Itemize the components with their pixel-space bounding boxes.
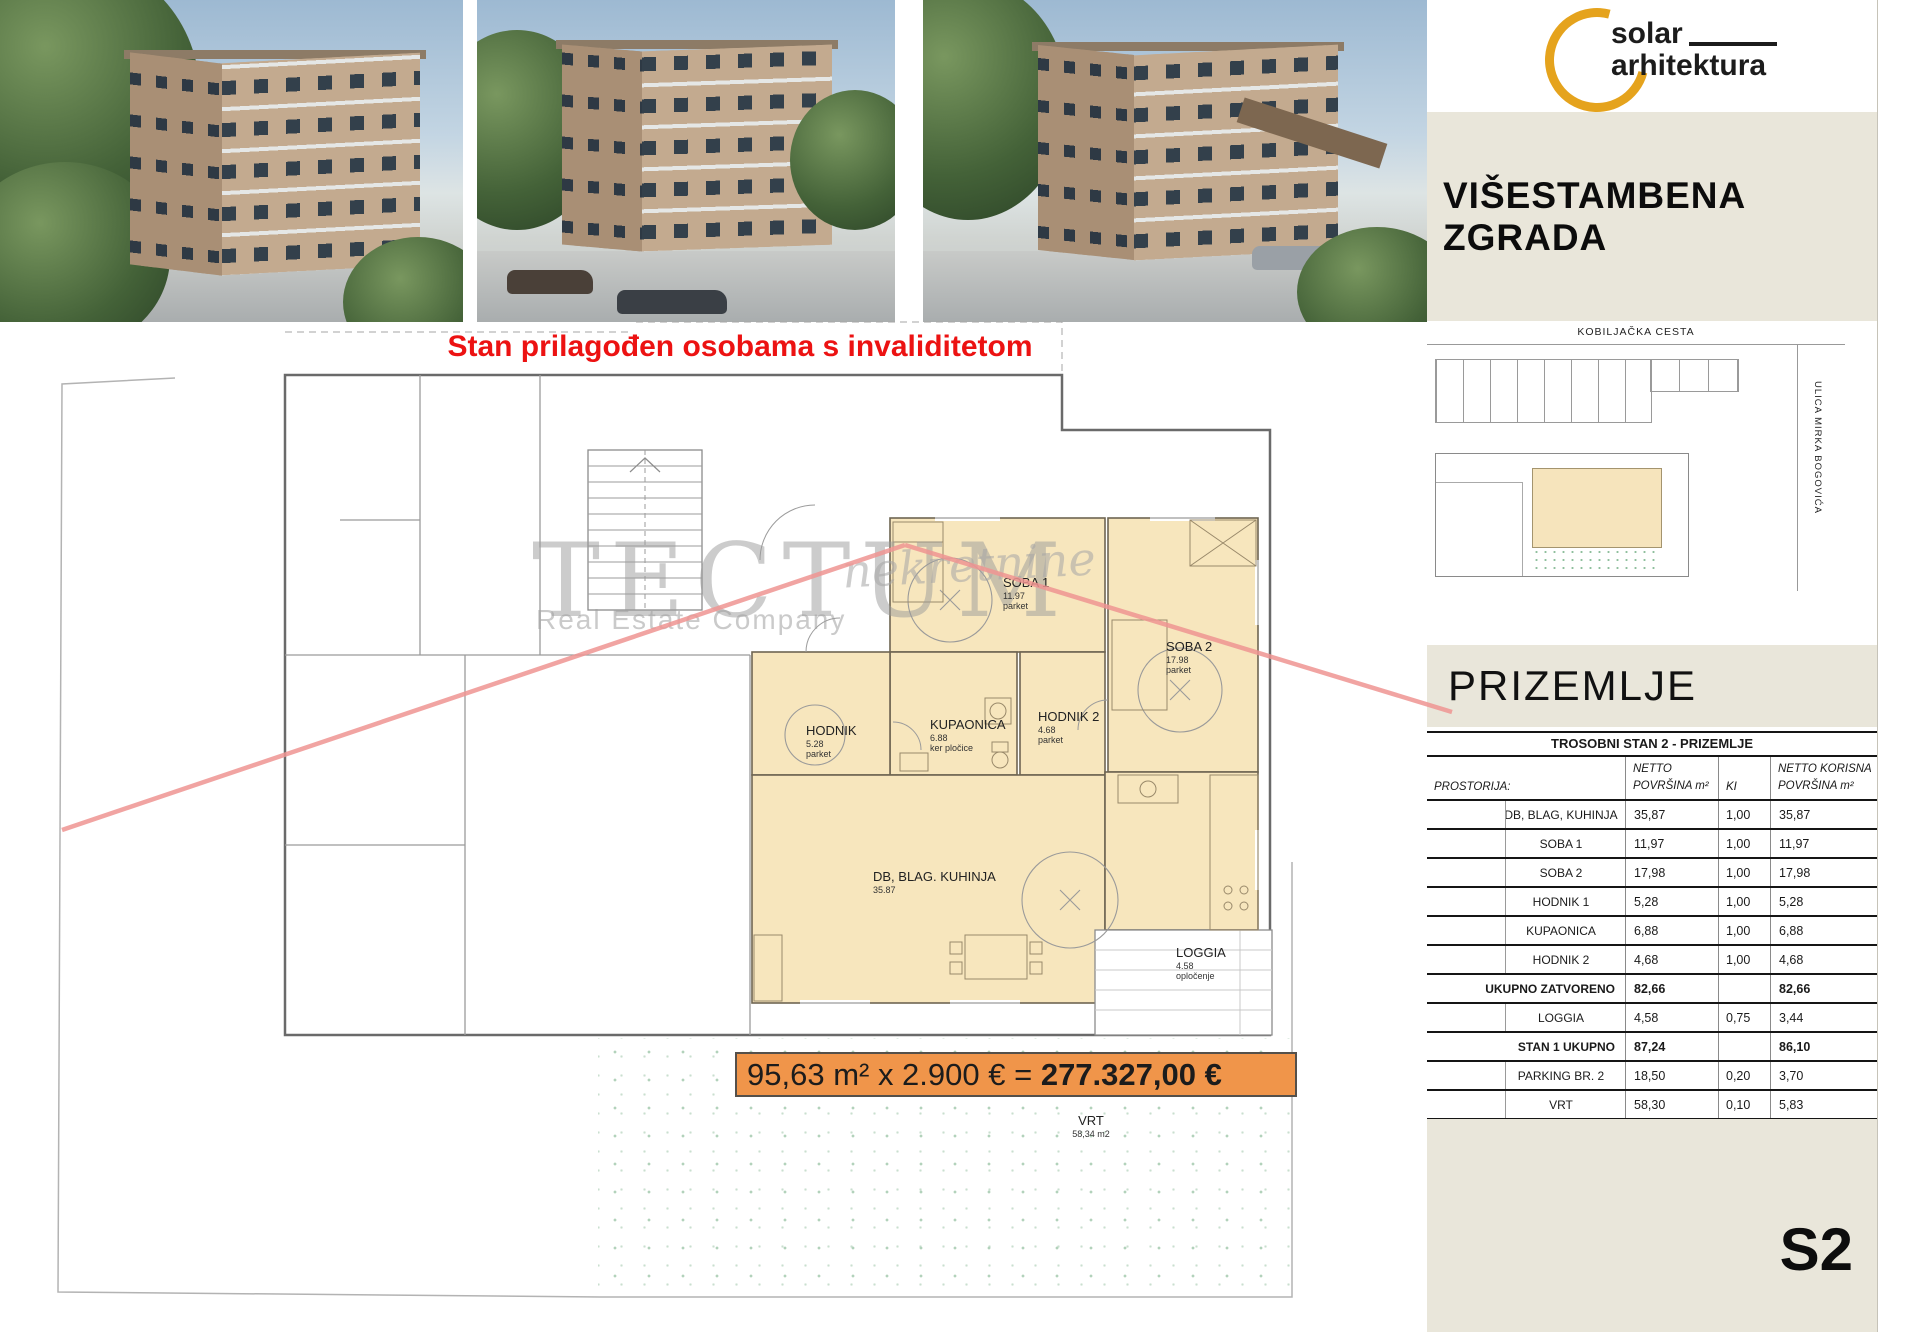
sheet-code-panel: S2 — [1427, 1119, 1877, 1332]
architect-logo: solar arhitektura — [1427, 0, 1877, 112]
price-total: 277.327,00 € — [1041, 1057, 1222, 1093]
room-label-hodnik2: HODNIK 2 4.68 parket — [1038, 710, 1099, 746]
row-netto: 35,87 — [1625, 801, 1718, 828]
row-korisna: 3,44 — [1770, 1004, 1877, 1031]
table-row: KUPAONICA 6,88 1,00 6,88 — [1427, 917, 1877, 946]
row-label: SOBA 1 — [1427, 830, 1625, 857]
table-title: TROSOBNI STAN 2 - PRIZEMLJE — [1427, 731, 1877, 757]
row-netto: 11,97 — [1625, 830, 1718, 857]
street-label-right: ULICA MIRKA BOGOVIĆA — [1812, 381, 1823, 514]
price-formula: 95,63 m² x 2.900 € = — [747, 1057, 1041, 1093]
building-render-3 — [923, 0, 1427, 322]
building-face — [562, 45, 642, 252]
row-label: STAN 1 UKUPNO — [1427, 1033, 1625, 1060]
building-face — [1038, 45, 1134, 260]
row-ki — [1718, 1033, 1770, 1060]
row-korisna: 82,66 — [1770, 975, 1877, 1002]
header-prostorija: PROSTORIJA: — [1427, 757, 1625, 799]
building — [1038, 50, 1338, 255]
floor-label-bar: PRIZEMLJE — [1427, 645, 1877, 727]
logo-text: solar arhitektura — [1611, 18, 1766, 82]
table-row: UKUPNO ZATVORENO 82,66 82,66 — [1427, 975, 1877, 1004]
street-line-right — [1797, 344, 1798, 591]
header-ki: KI — [1718, 757, 1770, 799]
row-netto: 18,50 — [1625, 1062, 1718, 1089]
row-label: LOGGIA — [1427, 1004, 1625, 1031]
row-netto: 6,88 — [1625, 917, 1718, 944]
price-banner: 95,63 m² x 2.900 € = 277.327,00 € — [735, 1052, 1297, 1097]
row-label: HODNIK 2 — [1427, 946, 1625, 973]
watermark-subtitle: Real Estate Company — [536, 604, 846, 636]
table-row: DB, BLAG, KUHINJA 35,87 1,00 35,87 — [1427, 801, 1877, 830]
row-ki: 1,00 — [1718, 830, 1770, 857]
room-label-loggia: LOGGIA 4.58 opločenje — [1176, 946, 1226, 982]
room-label-vrt: VRT 58,34 m2 — [1056, 1114, 1126, 1139]
room-label-soba2: SOBA 2 17.98 parket — [1166, 640, 1212, 676]
car — [617, 290, 727, 314]
project-title-bar: VIŠESTAMBENA ZGRADA — [1427, 112, 1877, 321]
site-plan-garden — [1532, 548, 1660, 575]
row-ki: 1,00 — [1718, 946, 1770, 973]
presentation-sheet: Stan prilagođen osobama s invaliditetom … — [0, 0, 1920, 1332]
row-label: DB, BLAG, KUHINJA — [1427, 801, 1625, 828]
row-label: PARKING BR. 2 — [1427, 1062, 1625, 1089]
row-korisna: 35,87 — [1770, 801, 1877, 828]
table-rows: DB, BLAG, KUHINJA 35,87 1,00 35,87 SOBA … — [1427, 801, 1877, 1149]
sidebar: solar arhitektura VIŠESTAMBENA ZGRADA KO… — [1427, 0, 1878, 1332]
car — [507, 270, 593, 294]
parking-stalls — [1435, 359, 1652, 423]
table-row: STAN 1 UKUPNO 87,24 86,10 — [1427, 1033, 1877, 1062]
table-row: HODNIK 1 5,28 1,00 5,28 — [1427, 888, 1877, 917]
sheet-code: S2 — [1780, 1215, 1853, 1284]
row-ki: 0,10 — [1718, 1091, 1770, 1118]
table-row: HODNIK 2 4,68 1,00 4,68 — [1427, 946, 1877, 975]
site-plan: KOBILJAČKA CESTA ULICA MIRKA BOGOVIĆA — [1427, 321, 1877, 591]
accessibility-headline: Stan prilagođen osobama s invaliditetom — [430, 330, 1050, 364]
table-row: SOBA 1 11,97 1,00 11,97 — [1427, 830, 1877, 859]
building-render-1 — [0, 0, 463, 322]
site-plan-highlighted-unit — [1532, 468, 1662, 548]
table-row: PARKING BR. 2 18,50 0,20 3,70 — [1427, 1062, 1877, 1091]
row-label: KUPAONICA — [1427, 917, 1625, 944]
header-netto: NETTO POVRŠINA m² — [1625, 757, 1718, 799]
row-korisna: 5,28 — [1770, 888, 1877, 915]
table-header: PROSTORIJA: NETTO POVRŠINA m² KI NETTO K… — [1427, 757, 1877, 801]
row-ki — [1718, 975, 1770, 1002]
row-korisna: 5,83 — [1770, 1091, 1877, 1118]
row-ki: 1,00 — [1718, 917, 1770, 944]
building-face — [1134, 45, 1338, 261]
row-ki: 1,00 — [1718, 888, 1770, 915]
room-label-kupaonica: KUPAONICA 6.88 ker pločice — [930, 718, 1006, 754]
room-label-db-blag-kuhinja: DB, BLAG. KUHINJA 35.87 — [873, 870, 996, 895]
row-netto: 17,98 — [1625, 859, 1718, 886]
row-label: SOBA 2 — [1427, 859, 1625, 886]
row-netto: 4,68 — [1625, 946, 1718, 973]
floor-label: PRIZEMLJE — [1448, 662, 1697, 710]
building — [130, 58, 420, 270]
table-row: LOGGIA 4,58 0,75 3,44 — [1427, 1004, 1877, 1033]
parking-stalls — [1650, 359, 1739, 392]
row-ki: 1,00 — [1718, 801, 1770, 828]
row-label: HODNIK 1 — [1427, 888, 1625, 915]
building-footprint — [1435, 453, 1689, 577]
row-netto: 58,30 — [1625, 1091, 1718, 1118]
footprint-wing — [1436, 482, 1523, 576]
row-korisna: 6,88 — [1770, 917, 1877, 944]
row-netto: 82,66 — [1625, 975, 1718, 1002]
row-korisna: 86,10 — [1770, 1033, 1877, 1060]
row-netto: 5,28 — [1625, 888, 1718, 915]
room-label-soba1: SOBA 1 11.97 parket — [1003, 576, 1049, 612]
table-row: SOBA 2 17,98 1,00 17,98 — [1427, 859, 1877, 888]
row-ki: 0,75 — [1718, 1004, 1770, 1031]
row-netto: 4,58 — [1625, 1004, 1718, 1031]
building-face — [130, 52, 222, 275]
row-korisna: 4,68 — [1770, 946, 1877, 973]
project-title: VIŠESTAMBENA ZGRADA — [1443, 175, 1877, 259]
room-label-hodnik: HODNIK 5.28 parket — [806, 724, 857, 760]
building-render-2 — [477, 0, 895, 322]
row-korisna: 17,98 — [1770, 859, 1877, 886]
header-netto-korisna: NETTO KORISNA POVRŠINA m² — [1770, 757, 1877, 799]
street-line — [1427, 344, 1845, 345]
row-netto: 87,24 — [1625, 1033, 1718, 1060]
row-ki: 0,20 — [1718, 1062, 1770, 1089]
row-korisna: 11,97 — [1770, 830, 1877, 857]
row-ki: 1,00 — [1718, 859, 1770, 886]
table-row: VRT 58,30 0,10 5,83 — [1427, 1091, 1877, 1120]
logo-rule — [1689, 42, 1777, 46]
row-label: VRT — [1427, 1091, 1625, 1118]
row-korisna: 3,70 — [1770, 1062, 1877, 1089]
street-label-top: KOBILJAČKA CESTA — [1427, 326, 1845, 338]
area-table: TROSOBNI STAN 2 - PRIZEMLJE PROSTORIJA: … — [1427, 731, 1877, 1149]
row-label: UKUPNO ZATVORENO — [1427, 975, 1625, 1002]
